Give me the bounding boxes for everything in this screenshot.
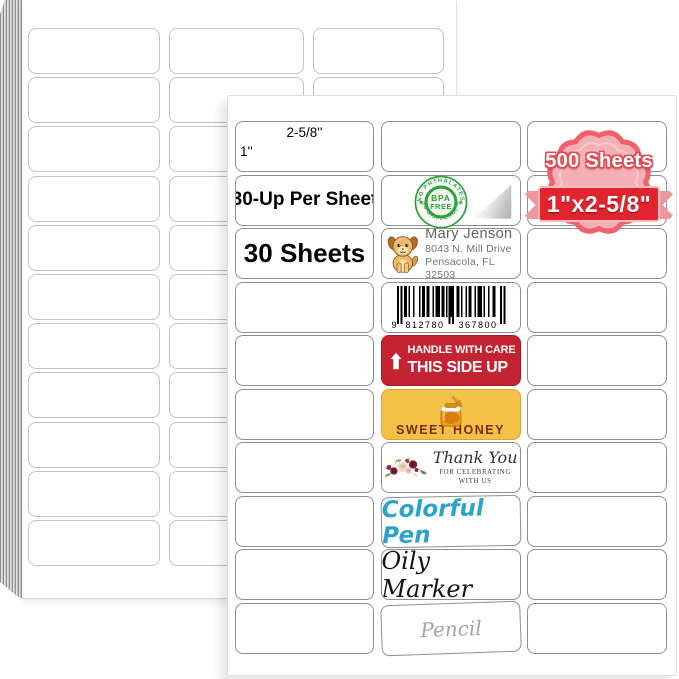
- blank-label-cell: [527, 496, 667, 547]
- handling-text-block: HANDLE WITH CARE THIS SIDE UP: [407, 344, 515, 376]
- seal-star-left: ✱: [418, 200, 422, 206]
- seal-star-right: ✱: [458, 200, 462, 206]
- peeling-corner-icon: [473, 184, 513, 221]
- colorful-pen-text: Colorful Pen: [381, 494, 520, 547]
- puppy-icon: [385, 231, 421, 277]
- sweet-honey-cell: SWEET HONEY: [381, 389, 521, 440]
- ribbon-band: 1"x2-5/8": [538, 186, 660, 222]
- thirty-up-cell: 30-Up Per Sheet: [235, 175, 374, 226]
- blank-label-cell: [527, 603, 667, 654]
- label-height-annotation: 1'': [240, 144, 253, 159]
- front-label-sheet: 2-5/8'' 1'' 30-Up Per Sheet NO PHTHALATE…: [227, 95, 677, 676]
- thank-you-text-block: Thank You FOR CELEBRATING WITH US: [433, 450, 518, 485]
- oily-marker-text: Oily Marker: [382, 549, 520, 600]
- blank-label-cell: [527, 442, 667, 493]
- colorful-pen-cell: Colorful Pen: [380, 494, 521, 547]
- handling-line1: HANDLE WITH CARE: [407, 344, 515, 357]
- barcode-digit-group2: 367800: [458, 320, 497, 330]
- thank-you-sub1: FOR CELEBRATING: [439, 469, 511, 476]
- barcode-digit-group1: 812780: [405, 320, 444, 330]
- blank-label-cell: [28, 28, 160, 74]
- blank-label-cell: [235, 496, 374, 547]
- label-width-annotation: 2-5/8'': [236, 125, 373, 140]
- thank-you-cell: Thank You FOR CELEBRATING WITH US: [381, 442, 521, 493]
- blank-label-cell: [235, 335, 374, 386]
- bpa-free-seal-icon: NO PHTHALATES NO BISPHENOL A ✱ ✱ BPA FRE…: [414, 175, 468, 229]
- promo-badge: 500 Sheets 1"x2-5/8": [524, 122, 674, 250]
- blank-label-cell: [235, 603, 374, 654]
- blank-label-cell: [28, 176, 160, 222]
- arrow-up-icon: [390, 342, 402, 380]
- blank-label-cell: [235, 549, 374, 600]
- size-ribbon-text: 1"x2-5/8": [547, 191, 651, 218]
- handling-line2: THIS SIDE UP: [407, 358, 515, 377]
- oily-marker-cell: Oily Marker: [381, 549, 521, 600]
- address-line1: 8043 N. Mill Drive: [425, 243, 516, 256]
- blank-label-cell: [28, 520, 160, 566]
- thirty-sheets-cell: 30 Sheets: [235, 228, 374, 279]
- barcode-label-cell: 9 812780 367800: [381, 282, 521, 333]
- blank-label-cell: [381, 121, 521, 172]
- thank-you-sub2: WITH US: [459, 478, 492, 485]
- blank-label-cell: [527, 335, 667, 386]
- address-line2: Pensacola, FL 32503: [425, 256, 516, 279]
- sheet-count-badge-text: 500 Sheets: [524, 150, 674, 173]
- flower-bouquet-icon: [384, 445, 433, 491]
- blank-label-cell: [169, 28, 304, 74]
- address-label-cell: Mary Jenson 8043 N. Mill Drive Pensacola…: [381, 228, 521, 279]
- thirty-sheets-text: 30 Sheets: [244, 238, 365, 269]
- thank-you-script: Thank You: [433, 450, 518, 467]
- blank-label-cell: [313, 28, 444, 74]
- seal-free-text: FREE: [430, 201, 452, 210]
- size-ribbon: 1"x2-5/8": [524, 186, 674, 224]
- pencil-cell: Pencil: [380, 600, 522, 656]
- blank-label-cell: [527, 282, 667, 333]
- dimension-label-cell: 2-5/8'' 1'': [235, 121, 374, 172]
- paper-stack-edge: [0, 0, 23, 599]
- blank-label-cell: [28, 471, 160, 517]
- honey-jar-icon: [382, 391, 520, 427]
- blank-label-cell: [28, 323, 160, 369]
- address-text-block: Mary Jenson 8043 N. Mill Drive Pensacola…: [425, 228, 516, 279]
- blank-label-cell: [235, 282, 374, 333]
- handle-with-care-cell: HANDLE WITH CARE THIS SIDE UP: [381, 335, 521, 386]
- blank-label-cell: [28, 274, 160, 320]
- thirty-up-text: 30-Up Per Sheet: [235, 189, 374, 211]
- blank-label-cell: [28, 225, 160, 271]
- blank-label-cell: [28, 77, 160, 123]
- pencil-text: Pencil: [419, 615, 481, 641]
- blank-label-cell: [527, 549, 667, 600]
- blank-label-cell: [527, 389, 667, 440]
- blank-label-cell: [235, 389, 374, 440]
- blank-label-cell: [28, 372, 160, 418]
- address-name: Mary Jenson: [425, 228, 516, 243]
- barcode-digit-lead: 9: [391, 320, 396, 330]
- blank-label-cell: [235, 442, 374, 493]
- bpa-free-cell: NO PHTHALATES NO BISPHENOL A ✱ ✱ BPA FRE…: [381, 175, 521, 226]
- barcode-icon: 9 812780 367800: [387, 283, 515, 331]
- blank-label-cell: [28, 126, 160, 172]
- blank-label-cell: [28, 422, 160, 468]
